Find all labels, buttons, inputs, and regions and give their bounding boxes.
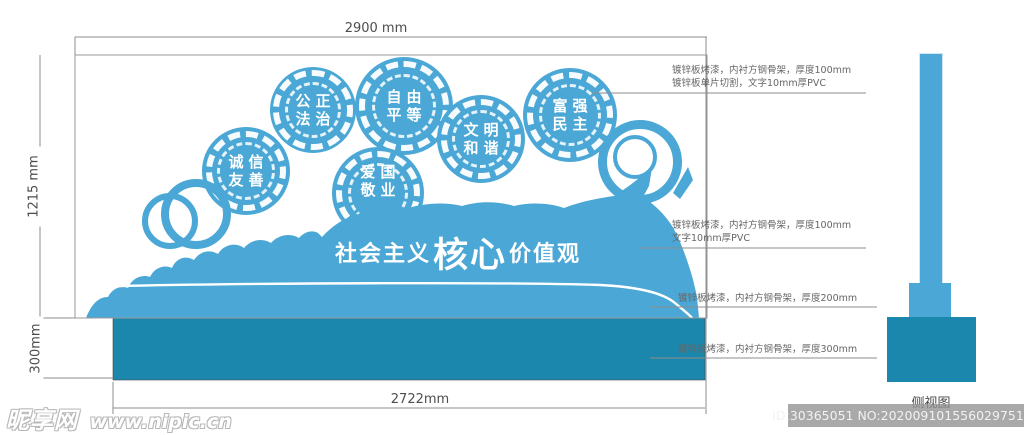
dimension-lines (0, 0, 1024, 435)
annotation-3: 镀锌板烤漆，内衬方钢骨架，厚度200mm (678, 292, 857, 305)
dim-label-bottom: 2722mm (378, 392, 462, 407)
watermark-site: 昵享网 www.nipic.cn (6, 401, 232, 435)
annotation-text: 镀锌板烤漆，内衬方钢骨架，厚度300mm (678, 343, 857, 356)
technical-drawing-canvas: 诚信 友善 公正 法治 自由 平等 爱国 敬业 文明 和谐 (0, 0, 1024, 435)
drawing-frame (75, 55, 707, 318)
annotation-text: 镀锌板烤漆，内衬方钢骨架，厚度200mm (678, 292, 857, 305)
annotation-text: 镀锌板烤漆，内衬方钢骨架，厚度100mm (672, 64, 851, 77)
watermark-site-url: www.nipic.cn (90, 411, 232, 433)
watermark-id-text: ID:30365051 NO:20200910155602975192 (772, 408, 1024, 423)
annotation-text: 文字10mm厚PVC (672, 232, 851, 245)
annotation-text: 镀锌板烤漆，内衬方钢骨架，厚度100mm (672, 219, 851, 232)
watermark-id-bar: ID:30365051 NO:20200910155602975192 (788, 404, 1024, 427)
annotation-2: 镀锌板烤漆，内衬方钢骨架，厚度100mm 文字10mm厚PVC (672, 219, 851, 245)
dim-label-left: 1215 mm (27, 147, 42, 227)
annotation-text: 镀锌板单片切割，文字10mm厚PVC (672, 77, 851, 90)
annotation-1: 镀锌板烤漆，内衬方钢骨架，厚度100mm 镀锌板单片切割，文字10mm厚PVC (672, 64, 851, 90)
dim-label-top: 2900 mm (334, 21, 418, 36)
annotation-4: 镀锌板烤漆，内衬方钢骨架，厚度300mm (678, 343, 857, 356)
dim-label-left-lower: 300mm (29, 317, 44, 381)
watermark-site-name: 昵享网 (6, 408, 78, 434)
